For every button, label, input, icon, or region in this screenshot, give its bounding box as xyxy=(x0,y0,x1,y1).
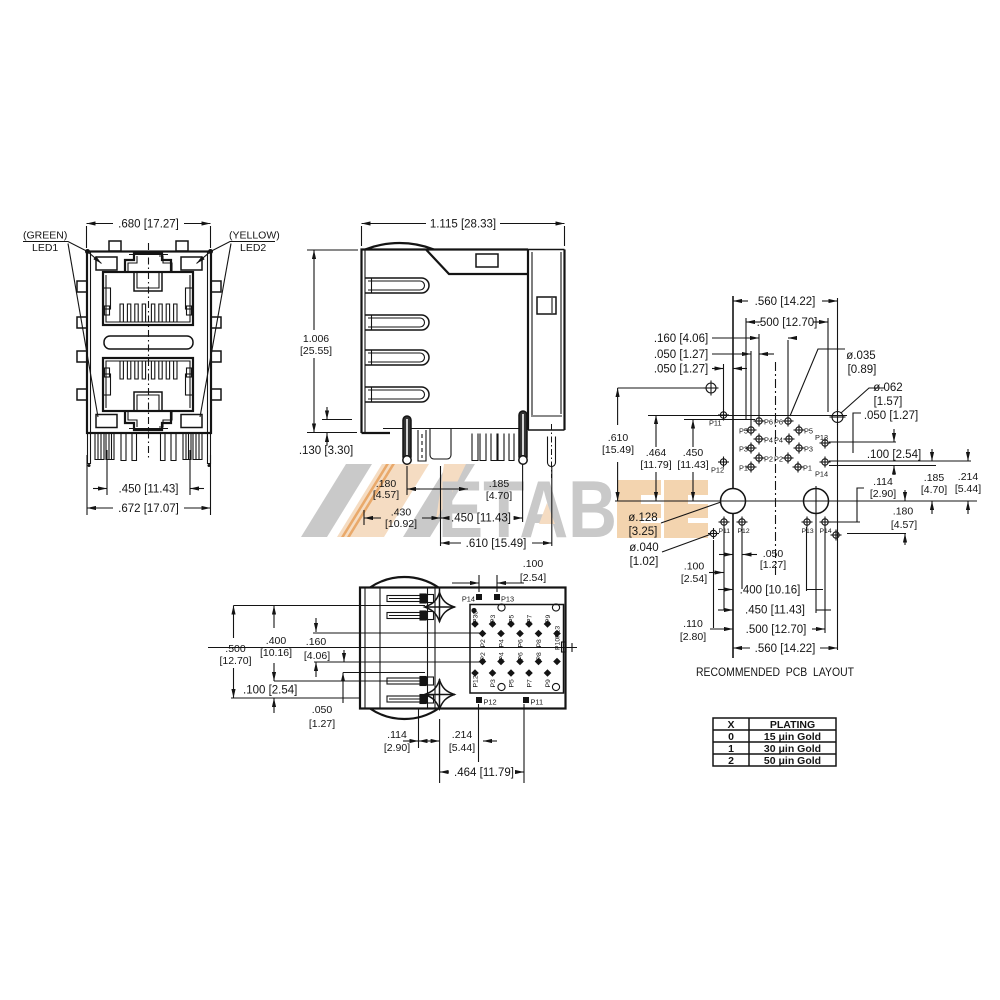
svg-text:P12: P12 xyxy=(484,698,497,707)
svg-text:[12.70]: [12.70] xyxy=(219,655,251,667)
svg-text:[11.43]: [11.43] xyxy=(677,459,708,471)
svg-text:P13: P13 xyxy=(802,528,814,535)
svg-text:P14: P14 xyxy=(820,528,832,535)
svg-text:[11.79]: [11.79] xyxy=(640,459,671,471)
svg-text:[1.57]: [1.57] xyxy=(874,396,903,408)
svg-text:ø.128: ø.128 xyxy=(628,512,657,524)
svg-text:.160: .160 xyxy=(306,636,327,648)
svg-text:P9: P9 xyxy=(545,614,552,623)
svg-text:.450 [11.43]: .450 [11.43] xyxy=(745,605,805,617)
svg-text:P5: P5 xyxy=(509,614,516,623)
svg-text:[10.16]: [10.16] xyxy=(260,647,292,659)
svg-text:P2: P2 xyxy=(480,639,487,648)
svg-text:[4.57]: [4.57] xyxy=(891,519,917,531)
svg-text:.100: .100 xyxy=(684,561,705,573)
svg-text:P30: P30 xyxy=(473,611,480,623)
svg-text:[2.54]: [2.54] xyxy=(681,573,707,585)
svg-text:P11: P11 xyxy=(709,419,722,428)
svg-text:P7: P7 xyxy=(527,679,534,688)
svg-text:.560 [14.22]: .560 [14.22] xyxy=(755,643,816,655)
svg-text:P6: P6 xyxy=(518,639,525,648)
svg-text:ø.040: ø.040 xyxy=(629,542,658,554)
svg-text:X: X xyxy=(727,719,734,731)
svg-text:.680 [17.27]: .680 [17.27] xyxy=(118,219,179,231)
svg-text:.050 [1.27]: .050 [1.27] xyxy=(654,364,708,376)
svg-text:P7: P7 xyxy=(527,614,534,623)
svg-text:1: 1 xyxy=(728,743,734,755)
svg-text:P6: P6 xyxy=(518,652,525,661)
svg-text:P3: P3 xyxy=(490,614,497,623)
svg-text:RECOMMENDED PCB LAYOUT: RECOMMENDED PCB LAYOUT xyxy=(696,667,854,679)
svg-text:.050 [1.27]: .050 [1.27] xyxy=(654,349,708,361)
svg-text:ø.035: ø.035 xyxy=(846,350,875,362)
svg-text:PLATING: PLATING xyxy=(770,719,815,731)
svg-text:0: 0 xyxy=(728,731,734,743)
svg-text:[0.89]: [0.89] xyxy=(848,364,877,376)
svg-text:.100: .100 xyxy=(523,558,544,570)
svg-text:[2.90]: [2.90] xyxy=(384,742,410,754)
svg-text:[5.44]: [5.44] xyxy=(449,742,475,754)
svg-text:.610: .610 xyxy=(608,432,629,444)
svg-text:P3: P3 xyxy=(804,445,813,454)
svg-text:P2: P2 xyxy=(764,455,773,464)
svg-text:.050: .050 xyxy=(312,704,333,716)
svg-text:P4: P4 xyxy=(764,436,773,445)
svg-text:.500 [12.70]: .500 [12.70] xyxy=(746,624,807,636)
svg-text:.500: .500 xyxy=(225,643,246,655)
svg-text:.430: .430 xyxy=(391,507,412,519)
svg-text:.464: .464 xyxy=(646,447,667,459)
svg-text:[4.06]: [4.06] xyxy=(304,650,330,662)
svg-text:[1.02]: [1.02] xyxy=(630,556,659,568)
svg-text:P13: P13 xyxy=(815,433,828,442)
svg-text:[5.44]: [5.44] xyxy=(955,483,981,495)
svg-text:P3: P3 xyxy=(490,679,497,688)
svg-text:P4: P4 xyxy=(499,639,506,648)
svg-text:ø.062: ø.062 xyxy=(873,382,902,394)
svg-text:P8: P8 xyxy=(536,652,543,661)
svg-text:P2: P2 xyxy=(480,652,487,661)
svg-text:P6: P6 xyxy=(774,418,783,427)
svg-text:P14: P14 xyxy=(462,595,475,604)
svg-text:P3: P3 xyxy=(739,445,748,454)
svg-text:30 μin Gold: 30 μin Gold xyxy=(764,743,821,755)
svg-text:P12: P12 xyxy=(711,466,724,475)
svg-text:.450: .450 xyxy=(683,447,704,459)
svg-text:.450 [11.43]: .450 [11.43] xyxy=(119,484,179,496)
svg-text:P5: P5 xyxy=(804,427,813,436)
svg-text:P11: P11 xyxy=(531,698,544,707)
svg-text:LED1: LED1 xyxy=(32,242,58,254)
svg-text:.050 [1.27]: .050 [1.27] xyxy=(864,410,918,422)
svg-text:[3.25]: [3.25] xyxy=(629,526,658,538)
svg-text:[1.27]: [1.27] xyxy=(760,559,786,571)
svg-text:[10.92]: [10.92] xyxy=(385,518,417,530)
svg-text:1.006: 1.006 xyxy=(303,333,329,345)
svg-text:1.115 [28.33]: 1.115 [28.33] xyxy=(430,219,496,231)
svg-text:.114: .114 xyxy=(873,476,893,488)
svg-text:(GREEN): (GREEN) xyxy=(23,230,67,242)
svg-text:P5: P5 xyxy=(509,679,516,688)
svg-text:.185: .185 xyxy=(924,472,945,484)
svg-text:P14: P14 xyxy=(815,470,828,479)
svg-text:P4: P4 xyxy=(774,436,783,445)
svg-text:.110: .110 xyxy=(683,618,703,630)
svg-text:[2.54]: [2.54] xyxy=(520,572,546,584)
svg-text:P5: P5 xyxy=(739,427,748,436)
svg-text:.672 [17.07]: .672 [17.07] xyxy=(118,503,179,515)
svg-text:P9: P9 xyxy=(545,679,552,688)
svg-text:P1: P1 xyxy=(803,464,812,473)
svg-text:.114: .114 xyxy=(387,729,407,741)
svg-text:.214: .214 xyxy=(958,471,979,483)
svg-text:.400 [10.16]: .400 [10.16] xyxy=(740,585,801,597)
svg-text:P10P13: P10P13 xyxy=(555,626,562,650)
svg-text:LED2: LED2 xyxy=(240,242,266,254)
svg-text:[4.57]: [4.57] xyxy=(373,489,399,501)
svg-text:.180: .180 xyxy=(893,506,914,518)
svg-text:.560 [14.22]: .560 [14.22] xyxy=(755,296,816,308)
svg-text:[2.90]: [2.90] xyxy=(870,488,896,500)
svg-text:P12: P12 xyxy=(738,528,750,535)
svg-text:.400: .400 xyxy=(266,635,287,647)
svg-text:2: 2 xyxy=(728,755,734,767)
svg-text:15 μin Gold: 15 μin Gold xyxy=(764,731,821,743)
svg-text:P1: P1 xyxy=(739,464,748,473)
svg-text:.214: .214 xyxy=(452,729,473,741)
svg-text:.100 [2.54]: .100 [2.54] xyxy=(867,449,921,461)
svg-text:[1.27]: [1.27] xyxy=(309,718,335,730)
svg-text:.160 [4.06]: .160 [4.06] xyxy=(654,333,708,345)
svg-text:P2: P2 xyxy=(774,455,783,464)
svg-text:.500 [12.70]: .500 [12.70] xyxy=(757,317,818,329)
svg-text:[2.80]: [2.80] xyxy=(680,631,706,643)
svg-text:[4.70]: [4.70] xyxy=(921,484,947,496)
svg-text:50 μin Gold: 50 μin Gold xyxy=(764,755,821,767)
svg-text:.100 [2.54]: .100 [2.54] xyxy=(243,685,297,697)
svg-text:.464 [11.79]: .464 [11.79] xyxy=(454,767,514,779)
svg-text:.610 [15.49]: .610 [15.49] xyxy=(466,538,527,550)
svg-text:P8: P8 xyxy=(536,639,543,648)
svg-text:P11: P11 xyxy=(719,528,731,535)
svg-text:P12: P12 xyxy=(473,675,480,687)
svg-text:(YELLOW): (YELLOW) xyxy=(229,230,280,242)
svg-text:[4.70]: [4.70] xyxy=(486,490,512,502)
svg-text:.450 [11.43]: .450 [11.43] xyxy=(451,513,511,525)
svg-text:.185: .185 xyxy=(489,478,510,490)
svg-text:[25.55]: [25.55] xyxy=(300,345,332,357)
svg-text:.130 [3.30]: .130 [3.30] xyxy=(299,445,353,457)
svg-text:P6: P6 xyxy=(764,418,773,427)
svg-text:P13: P13 xyxy=(501,595,514,604)
svg-text:P4: P4 xyxy=(499,652,506,661)
svg-text:[15.49]: [15.49] xyxy=(602,444,634,456)
